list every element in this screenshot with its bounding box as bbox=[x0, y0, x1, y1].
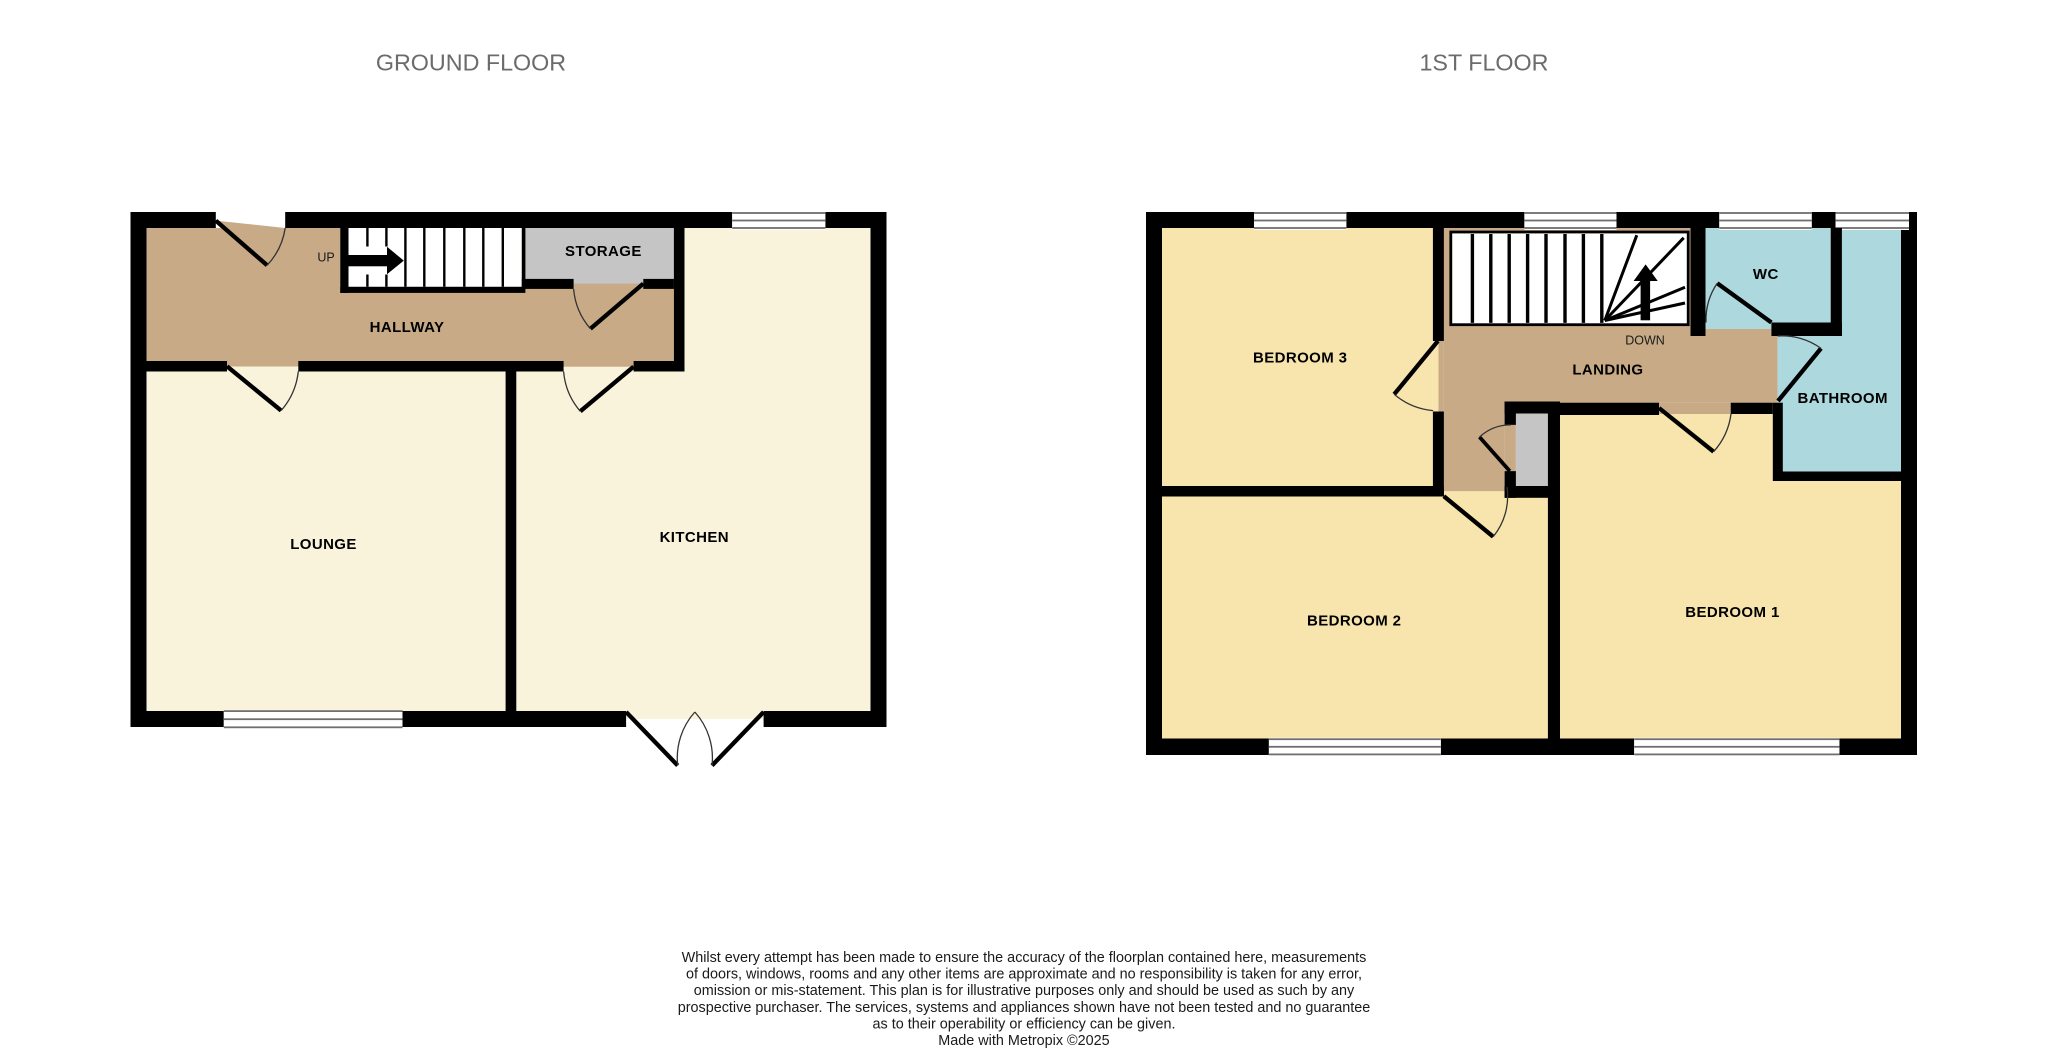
svg-text:as to their operability or eff: as to their operability or efficiency ca… bbox=[873, 1016, 1176, 1032]
svg-text:1ST FLOOR: 1ST FLOOR bbox=[1419, 50, 1548, 76]
svg-text:HALLWAY: HALLWAY bbox=[370, 319, 445, 336]
svg-text:LANDING: LANDING bbox=[1572, 362, 1643, 379]
svg-text:DOWN: DOWN bbox=[1625, 334, 1665, 348]
svg-text:Whilst every attempt has been: Whilst every attempt has been made to en… bbox=[682, 950, 1367, 966]
svg-text:STORAGE: STORAGE bbox=[565, 243, 642, 260]
svg-text:WC: WC bbox=[1753, 266, 1779, 283]
svg-text:BEDROOM 3: BEDROOM 3 bbox=[1253, 350, 1347, 367]
svg-text:of doors, windows, rooms and a: of doors, windows, rooms and any other i… bbox=[686, 967, 1362, 983]
svg-text:BEDROOM 2: BEDROOM 2 bbox=[1307, 612, 1401, 629]
svg-text:LOUNGE: LOUNGE bbox=[290, 536, 357, 553]
svg-text:BEDROOM 1: BEDROOM 1 bbox=[1685, 604, 1779, 621]
svg-text:omission or mis-statement. Thi: omission or mis-statement. This plan is … bbox=[694, 983, 1355, 999]
svg-text:GROUND FLOOR: GROUND FLOOR bbox=[376, 50, 566, 76]
svg-text:Made with Metropix ©2025: Made with Metropix ©2025 bbox=[938, 1033, 1109, 1049]
svg-text:UP: UP bbox=[317, 251, 334, 265]
svg-text:BATHROOM: BATHROOM bbox=[1797, 390, 1887, 407]
svg-text:KITCHEN: KITCHEN bbox=[660, 529, 729, 546]
svg-text:prospective purchaser. The ser: prospective purchaser. The services, sys… bbox=[678, 1000, 1371, 1016]
